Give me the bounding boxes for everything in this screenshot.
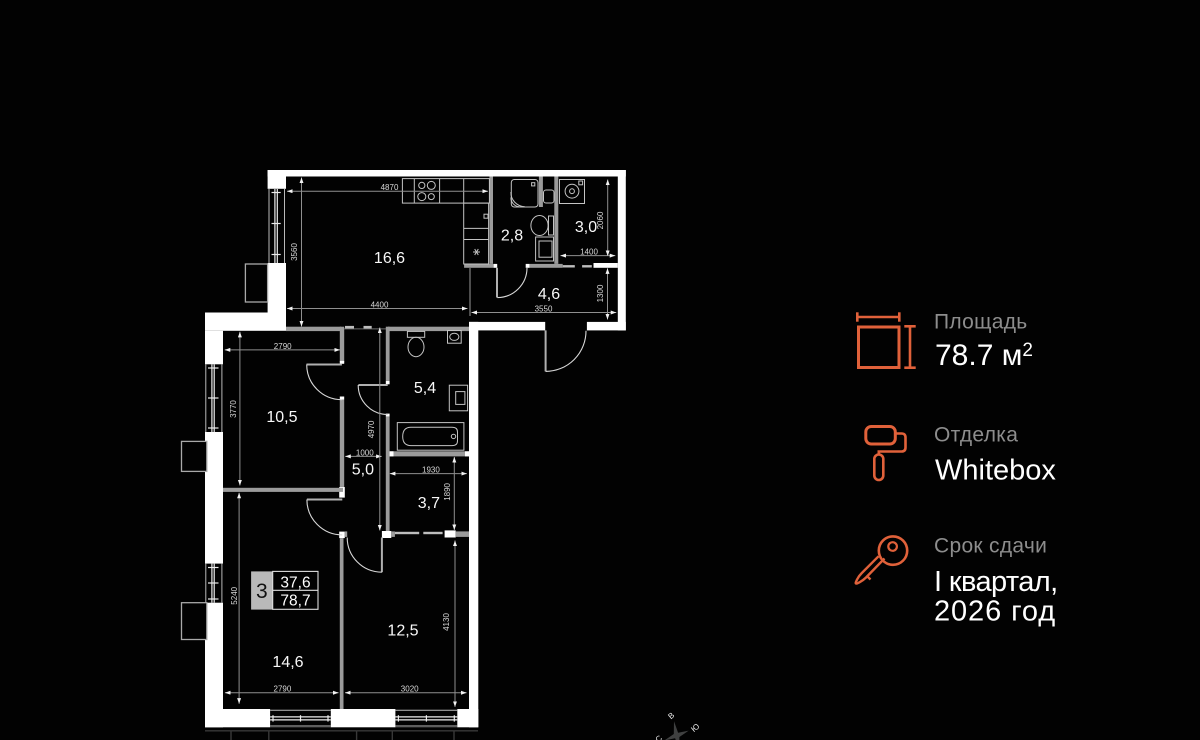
svg-text:I квартал,: I квартал, — [934, 566, 1058, 598]
svg-text:1930: 1930 — [422, 466, 440, 475]
svg-text:12,5: 12,5 — [387, 622, 418, 639]
svg-text:Whitebox: Whitebox — [935, 455, 1056, 487]
svg-text:2060: 2060 — [596, 211, 605, 229]
svg-text:37,6: 37,6 — [280, 574, 310, 591]
svg-text:4130: 4130 — [442, 613, 451, 631]
svg-text:5,0: 5,0 — [352, 461, 374, 478]
svg-text:3560: 3560 — [290, 243, 299, 261]
svg-text:3020: 3020 — [401, 685, 419, 694]
svg-text:14,6: 14,6 — [272, 654, 303, 671]
svg-text:3,7: 3,7 — [418, 495, 440, 512]
svg-text:2790: 2790 — [274, 342, 292, 351]
svg-text:3770: 3770 — [229, 400, 238, 418]
svg-text:5,4: 5,4 — [414, 380, 436, 397]
svg-text:4870: 4870 — [381, 183, 399, 192]
svg-text:1300: 1300 — [596, 284, 605, 302]
svg-text:3: 3 — [256, 580, 268, 603]
svg-text:4400: 4400 — [371, 301, 389, 310]
svg-text:1890: 1890 — [443, 482, 452, 500]
svg-text:5240: 5240 — [230, 586, 239, 604]
svg-text:2026 год: 2026 год — [934, 595, 1056, 627]
svg-text:10,5: 10,5 — [266, 409, 297, 426]
svg-text:Срок сдачи: Срок сдачи — [934, 534, 1047, 557]
svg-text:16,6: 16,6 — [374, 250, 405, 267]
svg-text:78,7: 78,7 — [280, 592, 310, 609]
svg-text:3,0: 3,0 — [575, 219, 597, 236]
svg-text:78.7 м2: 78.7 м2 — [935, 339, 1033, 372]
svg-text:4,6: 4,6 — [538, 286, 560, 303]
svg-text:4970: 4970 — [367, 420, 376, 438]
svg-text:Отделка: Отделка — [934, 423, 1018, 446]
svg-text:1000: 1000 — [356, 448, 374, 457]
svg-text:2,8: 2,8 — [501, 227, 523, 244]
svg-text:Площадь: Площадь — [934, 311, 1028, 334]
svg-text:3550: 3550 — [535, 304, 553, 313]
svg-text:1400: 1400 — [580, 248, 598, 257]
svg-text:2790: 2790 — [274, 685, 292, 694]
